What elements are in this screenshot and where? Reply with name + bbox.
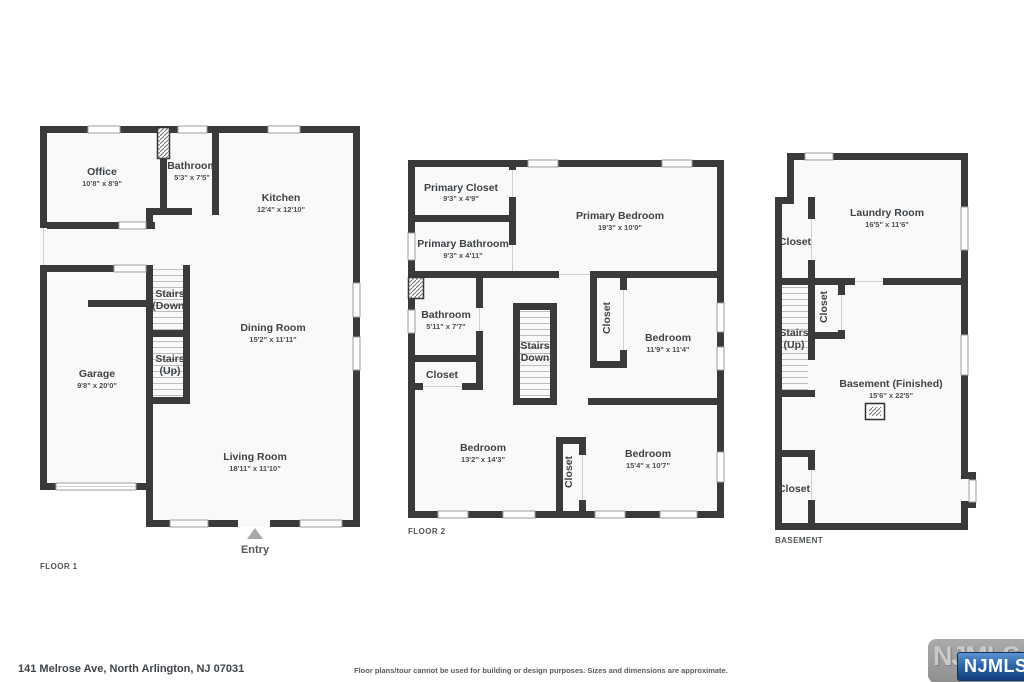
floor2-bedroom-right-name: Bedroom	[645, 332, 691, 344]
floor1-garage-name: Garage	[79, 368, 115, 380]
floor2-primary-bathroom-dims: 9'3" x 4'11"	[443, 251, 483, 260]
floor2-bedroom-br-dims: 15'4" x 10'7"	[626, 461, 670, 470]
floor2-chimney	[409, 278, 424, 299]
basement-finished-dims: 15'6" x 22'5"	[869, 391, 913, 400]
floor2-mid-closet-label: Closet	[563, 455, 575, 488]
floor1-entry-label: Entry	[241, 544, 270, 556]
floor1-bathroom-dims: 5'3" x 7'5"	[174, 173, 210, 182]
floor1-dining-name: Dining Room	[240, 322, 305, 334]
floor2-bedroom-br-name: Bedroom	[625, 448, 671, 460]
floor1-stairs-down-line1: Stairs	[155, 288, 184, 300]
property-address: 141 Melrose Ave, North Arlington, NJ 070…	[18, 663, 244, 675]
floor2-bedroom-bl-dims: 13'2" x 14'3"	[461, 455, 505, 464]
floor1-garage-dims: 9'8" x 20'0"	[77, 381, 117, 390]
floorplan-page: Office 10'8" x 8'9" Bathroom 5'3" x 7'5"…	[0, 0, 1024, 682]
floor2-bedroom-bl-name: Bedroom	[460, 442, 506, 454]
njmls-logo: NJMLS	[957, 652, 1024, 681]
basement-stairs-up-line2: (Up)	[784, 339, 805, 351]
basement-stair-closet-label: Closet	[818, 290, 830, 323]
basement-laundry-dims: 16'5" x 11'6"	[865, 220, 909, 229]
floor2-bedroom-right-dims: 11'9" x 11'4"	[646, 345, 690, 354]
floor1-office-dims: 10'8" x 8'9"	[82, 179, 122, 188]
floor1-stairs-up-line2: (Up)	[160, 365, 181, 377]
floor1-living-name: Living Room	[223, 451, 287, 463]
disclaimer-text: Floor plans/tour cannot be used for buil…	[354, 666, 728, 675]
floor2-primary-bedroom-name: Primary Bedroom	[576, 210, 664, 222]
floor2-primary-bedroom-dims: 19'3" x 10'0"	[598, 223, 642, 232]
floor2-stairs-down-line2: (Down)	[517, 352, 553, 364]
basement-stairs-up-line1: Stairs	[779, 327, 808, 339]
floor1-bathroom-name: Bathroom	[167, 160, 217, 172]
floor2-plan: Primary Closet 9'3" x 4'9" Primary Bedro…	[408, 160, 724, 536]
floor1-title: FLOOR 1	[40, 562, 78, 571]
floor2-title: FLOOR 2	[408, 527, 446, 536]
floor1-chimney	[158, 128, 170, 159]
floor2-primary-closet-dims: 9'3" x 4'9"	[443, 194, 479, 203]
basement-lower-closet-label: Closet	[778, 483, 811, 495]
floor2-primary-bathroom-name: Primary Bathroom	[417, 238, 509, 250]
basement-upper-closet-label: Closet	[779, 236, 812, 248]
basement-laundry-name: Laundry Room	[850, 207, 924, 219]
floor1-dining-dims: 15'2" x 11'11"	[249, 335, 297, 344]
floor1-living-dims: 18'11" x 11'10"	[229, 464, 281, 473]
floor2-hall-closet-label: Closet	[601, 301, 613, 334]
floor2-left-closet-label: Closet	[426, 369, 459, 381]
basement-plan: Laundry Room 16'5" x 11'6" Closet Closet…	[775, 153, 976, 545]
basement-title: BASEMENT	[775, 536, 823, 545]
basement-finished-name: Basement (Finished)	[839, 378, 942, 390]
entry-arrow-icon	[247, 528, 263, 539]
njmls-logo-text: NJMLS	[964, 656, 1024, 677]
floor2-bathroom-dims: 5'11" x 7'7"	[426, 322, 466, 331]
floor1-stairs-down-line2: (Down)	[152, 300, 188, 312]
floor2-stairs-down-line1: Stairs	[520, 340, 549, 352]
basement-support-column	[866, 404, 885, 420]
floor1-plan: Office 10'8" x 8'9" Bathroom 5'3" x 7'5"…	[40, 126, 360, 571]
floor2-primary-closet-name: Primary Closet	[424, 182, 499, 194]
floor1-kitchen-dims: 12'4" x 12'10"	[257, 205, 306, 214]
floorplans-svg: Office 10'8" x 8'9" Bathroom 5'3" x 7'5"…	[0, 0, 1024, 640]
floor1-kitchen-name: Kitchen	[262, 192, 301, 204]
floor1-stairs-up-line1: Stairs	[155, 353, 184, 365]
floor2-bathroom-name: Bathroom	[421, 309, 471, 321]
floor1-office-name: Office	[87, 166, 117, 178]
